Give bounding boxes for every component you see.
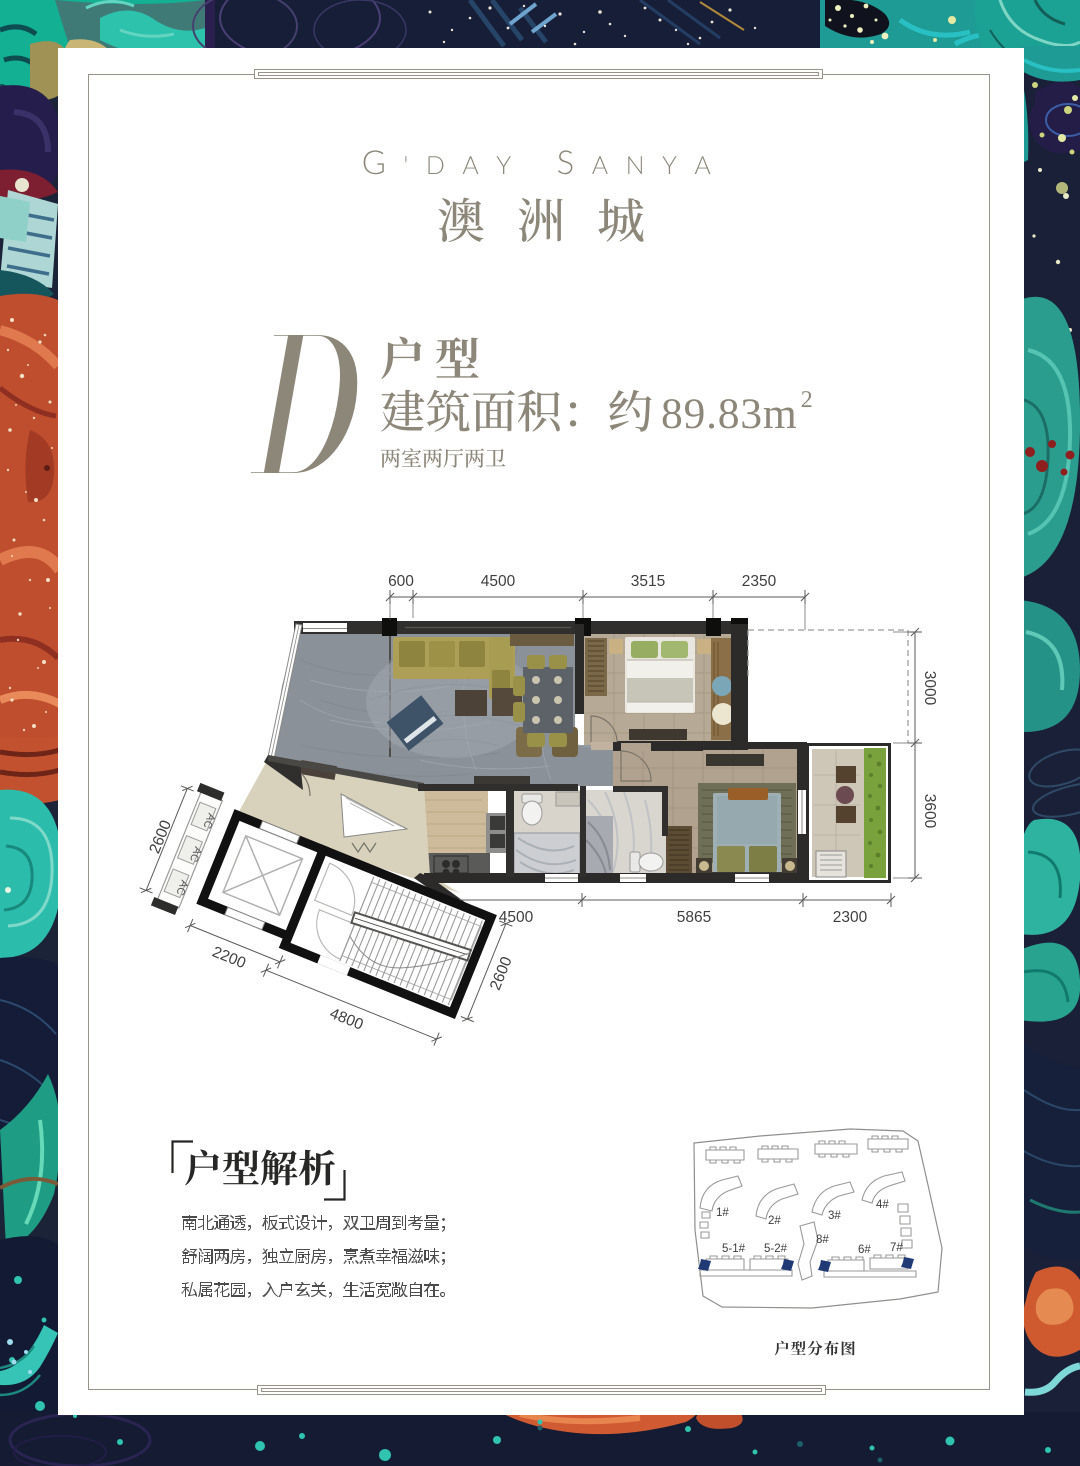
svg-text:3600: 3600: [921, 794, 938, 829]
svg-text:3515: 3515: [631, 573, 665, 590]
svg-text:600: 600: [388, 573, 414, 590]
svg-text:4500: 4500: [499, 909, 534, 926]
svg-text:4500: 4500: [481, 573, 516, 590]
svg-text:2#: 2#: [768, 1215, 781, 1227]
svg-text:3#: 3#: [828, 1210, 841, 1222]
svg-text:5-1#: 5-1#: [722, 1243, 746, 1255]
svg-text:8#: 8#: [816, 1234, 829, 1246]
svg-text:2300: 2300: [833, 909, 868, 926]
svg-text:5865: 5865: [677, 909, 711, 926]
svg-text:5-2#: 5-2#: [764, 1243, 788, 1255]
svg-text:7#: 7#: [890, 1242, 903, 1254]
svg-text:1#: 1#: [716, 1207, 729, 1219]
svg-text:4#: 4#: [876, 1199, 889, 1211]
svg-text:2350: 2350: [742, 573, 777, 590]
svg-text:3000: 3000: [921, 671, 938, 706]
svg-text:6#: 6#: [858, 1244, 871, 1256]
